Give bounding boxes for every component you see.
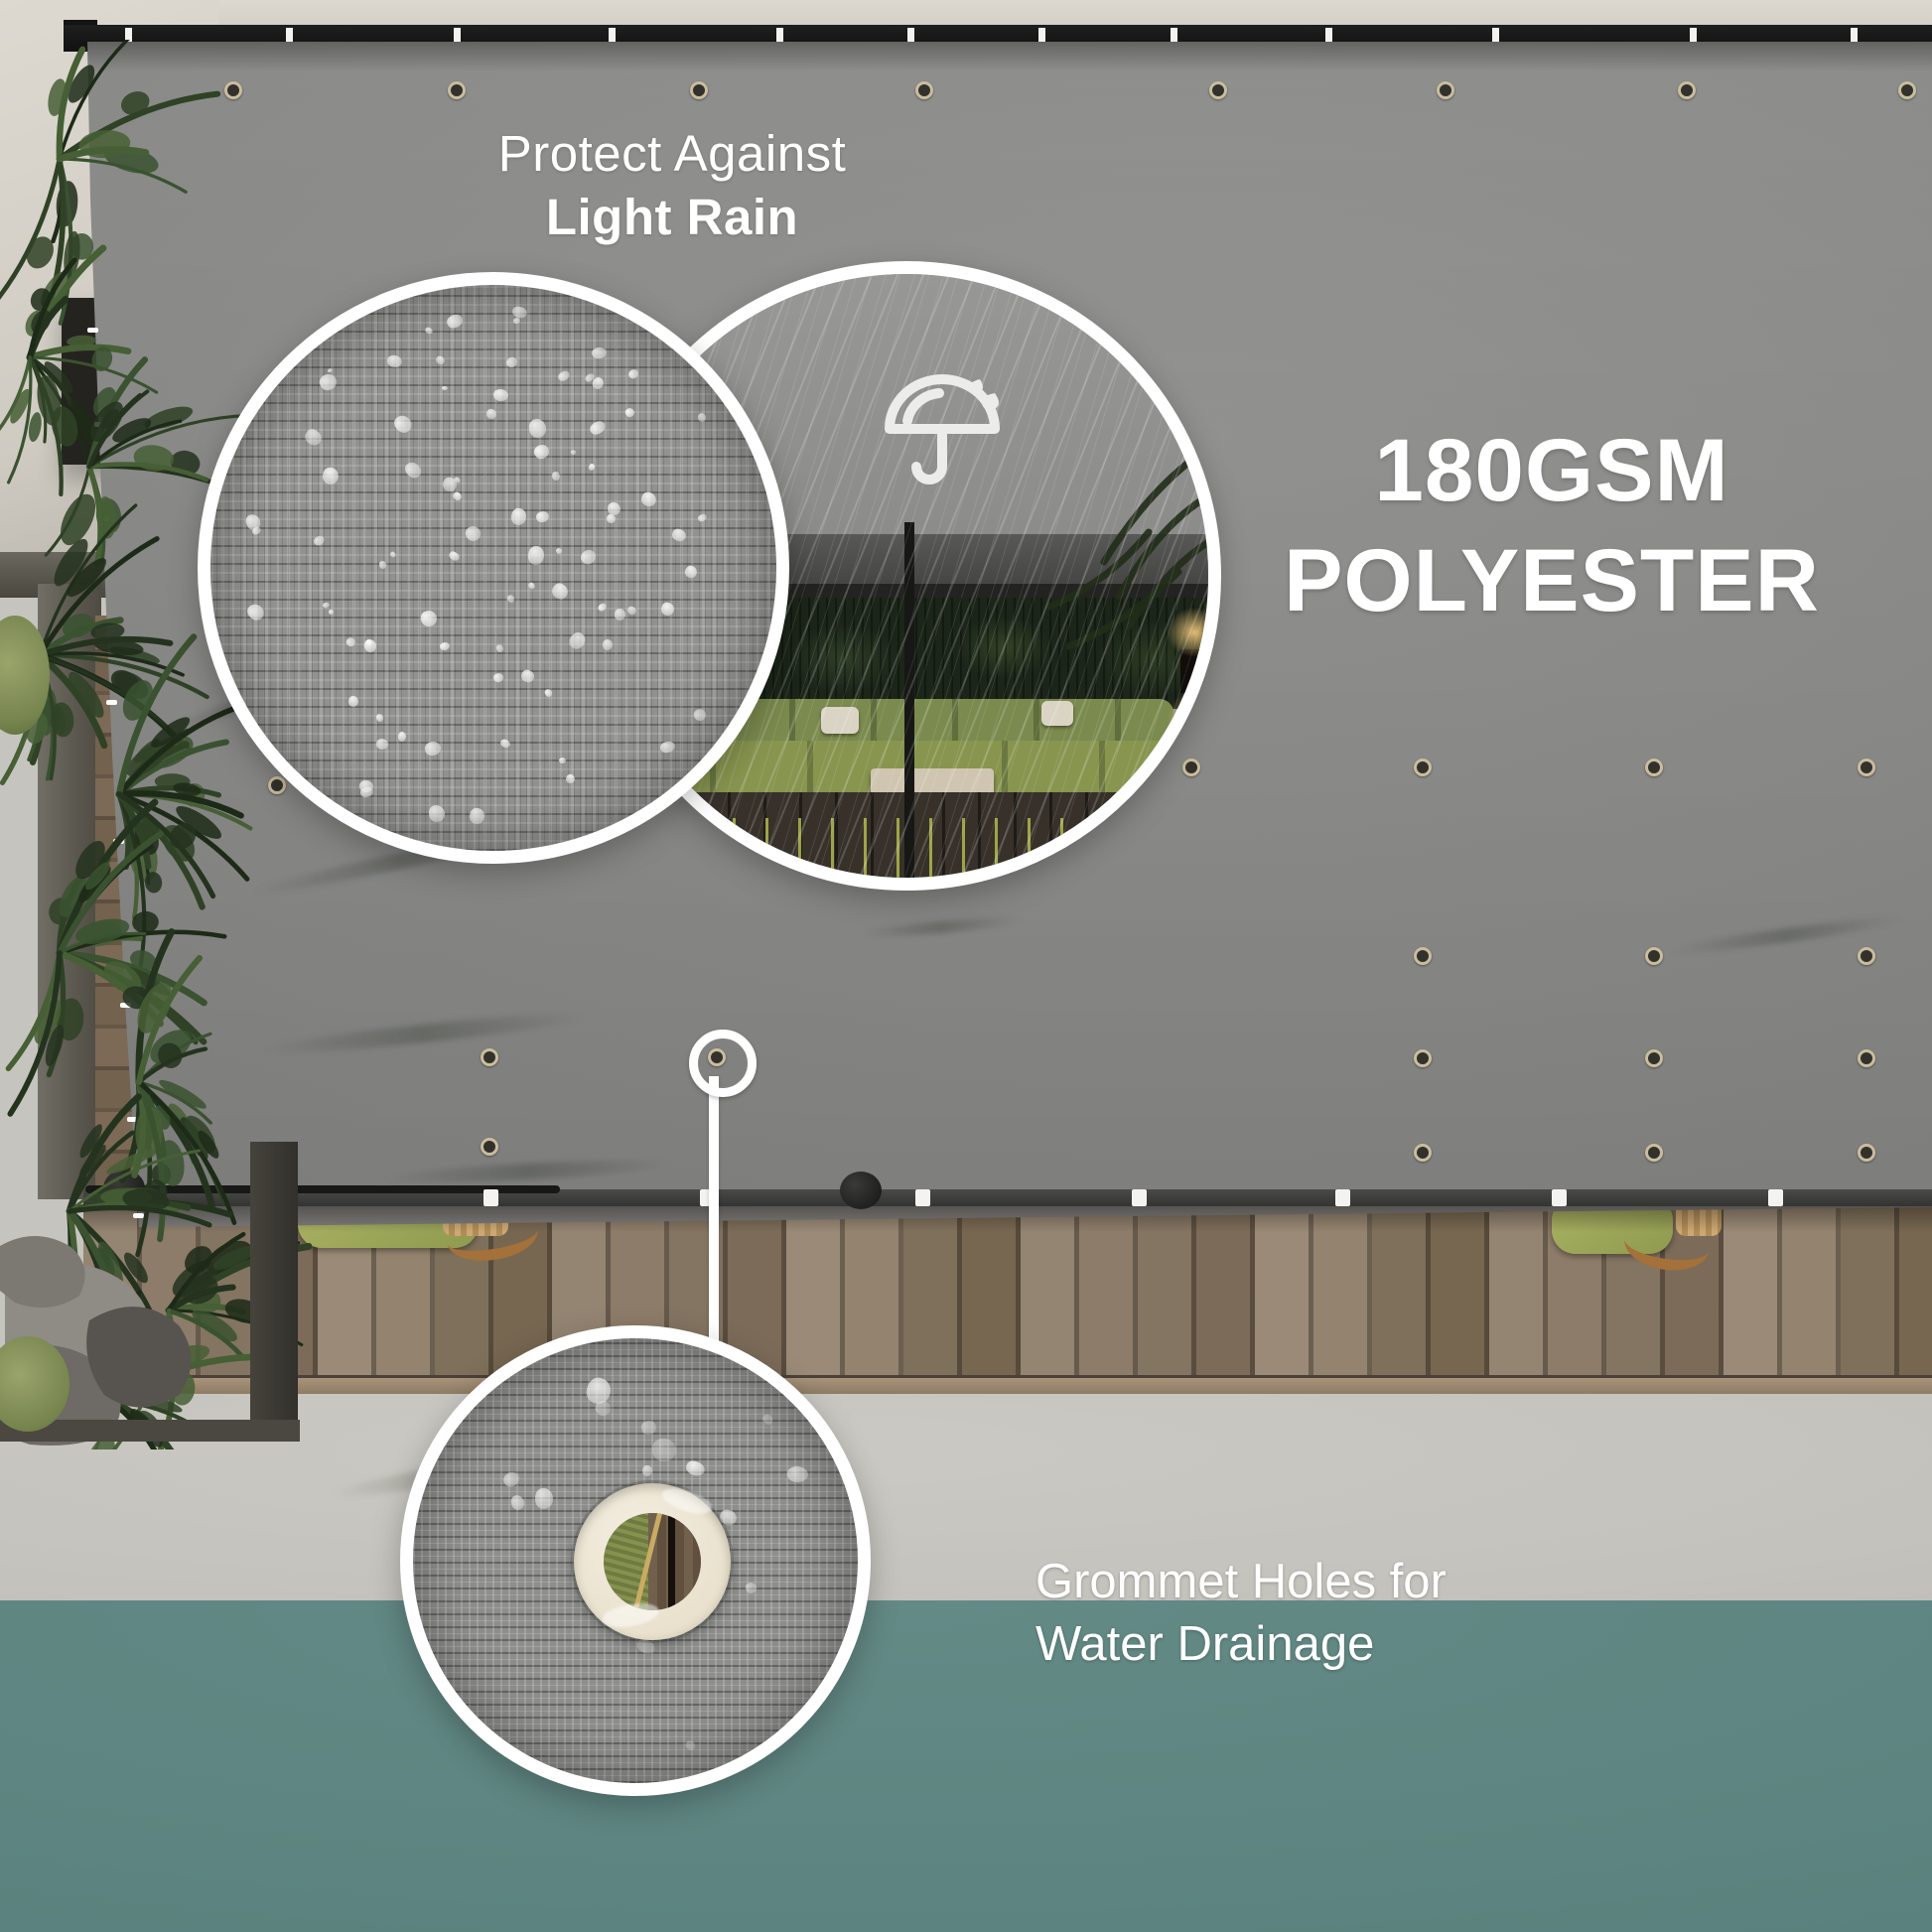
tarp-grommet-dot (1414, 759, 1432, 776)
umbrella-rain-icon (878, 365, 1007, 494)
pool-water (0, 1600, 1932, 1932)
tarp-cast-shadow (83, 1206, 1932, 1232)
tarp-grommet-dot (1414, 947, 1432, 965)
grommet-caption: Grommet Holes for Water Drainage (1035, 1551, 1591, 1676)
tarp-grommet-dot (1437, 81, 1454, 99)
tarp-grommet-dot (1898, 81, 1916, 99)
caption-line1: Grommet Holes for (1035, 1551, 1591, 1613)
vignette (210, 285, 776, 851)
rod-knob-mid (840, 1172, 882, 1209)
tarp-edge-clip (1552, 1189, 1567, 1206)
tarp-grommet-dot (690, 81, 708, 99)
caption-line2: Water Drainage (1035, 1613, 1591, 1676)
tarp-edge-clip (1132, 1189, 1147, 1206)
tarp-grommet-dot (1414, 1144, 1432, 1162)
material-line1: 180GSM (1204, 415, 1899, 525)
tarp-grommet-dot (915, 81, 933, 99)
tarp-grommet-dot (1858, 1144, 1875, 1162)
planter-border (250, 1142, 298, 1428)
tarp-grommet-dot (481, 1138, 498, 1156)
tarp-grommet-dot (1645, 947, 1663, 965)
tarp-grommet-dot (1645, 759, 1663, 776)
tarp-grommet-dot (1858, 947, 1875, 965)
tarp-grommet-dot (1678, 81, 1696, 99)
fabric-closeup-inset (198, 272, 789, 864)
deck-edge-trim (83, 1375, 1932, 1394)
tarp-edge-clip (915, 1189, 930, 1206)
tarp-edge-clip (483, 1189, 498, 1206)
tarp-grommet-dot (1414, 1049, 1432, 1067)
product-infographic: Protect Against Light Rain 180GSM POLYES… (0, 0, 1932, 1932)
grommet-leader-line (709, 1076, 719, 1342)
tarp-grommet-dot (1858, 759, 1875, 776)
tarp-grommet-dot (1645, 1144, 1663, 1162)
tarp-grommet-dot (481, 1048, 498, 1066)
tarp-edge-clip (1335, 1189, 1350, 1206)
tarp-grommet-dot (1645, 1049, 1663, 1067)
tarp-top-shadow (87, 42, 1932, 71)
headline: Protect Against Light Rain (424, 122, 920, 249)
grommet-marker-ring (689, 1030, 757, 1097)
tarp-grommet-dot (448, 81, 466, 99)
headline-line2: Light Rain (424, 186, 920, 249)
tarp-grommet-dot (1858, 1049, 1875, 1067)
material-line2: POLYESTER (1204, 525, 1899, 635)
material-spec: 180GSM POLYESTER (1204, 415, 1899, 635)
headline-line1: Protect Against (424, 122, 920, 186)
grommet-closeup-inset (400, 1325, 871, 1796)
tarp-edge-clip (1768, 1189, 1783, 1206)
tarp-grommet-dot (1209, 81, 1227, 99)
vignette (413, 1338, 858, 1783)
